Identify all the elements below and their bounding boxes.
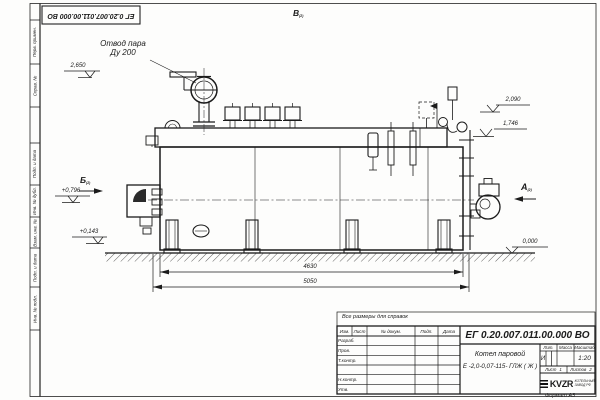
product-name-line1: Котел паровой (460, 348, 540, 360)
top-hatches (223, 103, 302, 128)
ground (105, 253, 535, 262)
tb-header-podp: Подп. (415, 326, 438, 336)
dome (165, 121, 180, 128)
view-marker-v: В(2) (293, 9, 303, 19)
logo-text: KVZR (550, 379, 573, 389)
steam-valve (150, 60, 217, 135)
tb-row-prov: Пров. (337, 346, 368, 356)
elevation-0000: 0,000 (512, 239, 548, 245)
tb-sheet: Лист1 (540, 366, 567, 373)
tb-header-list: Лист (352, 326, 367, 336)
tb-header-doc: № докум. (367, 326, 415, 336)
company-logo: KVZR КОТЕЛЬНЫЙЗАВОД РФ (540, 373, 595, 394)
tb-mass-label: Масса (557, 344, 574, 351)
frame-label-sprav: Справ. № (30, 64, 40, 107)
boiler-body (148, 128, 474, 250)
dimension-4630: 4630 (290, 264, 330, 270)
elevation-1746: 1,746 (494, 121, 527, 127)
tb-row-utv: Утв. (337, 384, 368, 394)
format-label: Формат А3 (545, 394, 575, 400)
frame-label-podp-data-1: Подп. и дата (30, 143, 40, 185)
frame-label-vzam-inv: Взам. инв. № (30, 217, 40, 248)
doc-number: ЕГ 0.20.007.011.00.000 ВО (460, 326, 595, 344)
support-legs (164, 220, 452, 253)
logo-bars-icon (540, 379, 548, 388)
tb-header-izm: Изм. (337, 326, 352, 336)
tb-header-data: Дата (438, 326, 460, 336)
view-marker-a: А(2) (521, 183, 532, 193)
elevation-2650: 2,650 (60, 63, 96, 69)
frame-label-inv-podl: Инв. № подл. (30, 287, 40, 330)
tb-scale-value: 1:20 (574, 351, 595, 366)
tb-row-tkontr: Т.контр. (337, 355, 368, 365)
front-box (127, 136, 162, 234)
dimension-5050: 5050 (290, 279, 330, 285)
top-fittings (419, 87, 467, 132)
view-arrows (79, 188, 536, 201)
tb-row-nkontr: Н.контр. (337, 375, 368, 385)
frame-label-inv-dubl: Инв. № дубл. (30, 185, 40, 217)
view-marker-b: Б(2) (80, 176, 90, 186)
tb-lit-label: Лит. (540, 344, 557, 351)
elevation-0796: +0,796 (52, 188, 90, 194)
tb-row-razrab: Разраб. (337, 336, 368, 346)
tb-lit-value: И (540, 351, 546, 366)
corner-stamp-number: ЕГ 0.20.007.011.00.000 ВО (42, 6, 140, 24)
tb-sheets: Листов2 (567, 366, 595, 373)
logo-subtext: КОТЕЛЬНЫЙЗАВОД РФ (575, 380, 595, 387)
rear-pipe-burner (459, 130, 500, 250)
frame-label-perv-primen: Перв. примен. (30, 20, 40, 64)
tb-scale-label: Масштаб (574, 344, 595, 351)
level-gauges (368, 122, 416, 176)
elevation-0143: +0,143 (70, 229, 108, 235)
steam-outlet-label-line2: Ду 200 (88, 49, 158, 57)
reference-note: Все размеры для справок (342, 315, 408, 321)
elevation-2090: 2,090 (496, 97, 530, 103)
drawing-sheet: ЕГ 0.20.007.011.00.000 ВО Перв. примен. … (0, 0, 600, 400)
frame-label-podp-data-2: Подп. и дата (30, 248, 40, 287)
elevation-marks (55, 71, 548, 253)
product-name-line2: Е -2,0-0,07-115- ГЛЖ ( Ж ) (460, 360, 540, 372)
